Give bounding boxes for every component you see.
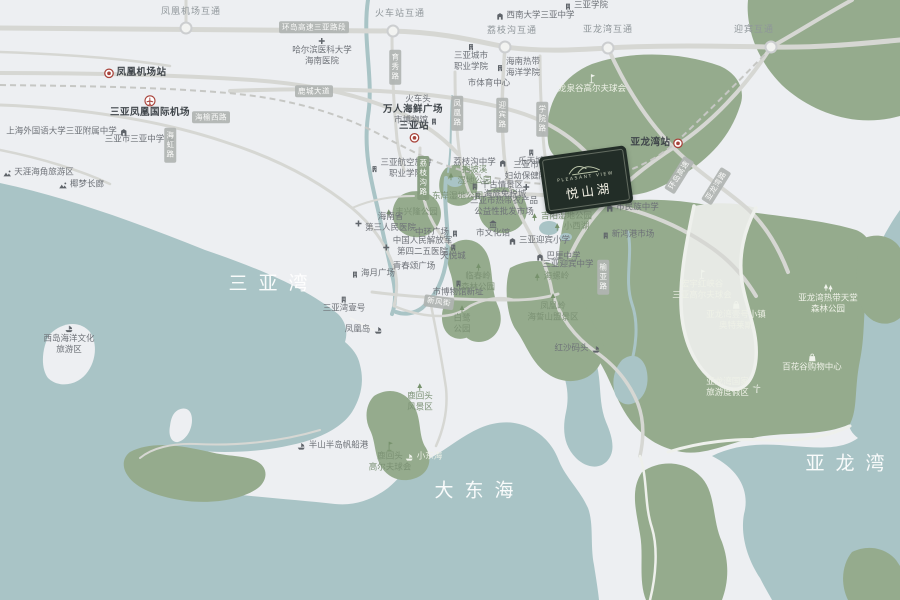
building-icon bbox=[454, 279, 462, 287]
cross-icon bbox=[317, 36, 326, 45]
poi-fengxinglong-park-label: 丰兴隆公园 bbox=[395, 207, 438, 218]
poi-wanren-seafood-plaza-label: 万人海鲜广场 bbox=[383, 104, 443, 116]
station-fenghuang-airport-label: 凤凰机场站 bbox=[116, 67, 166, 79]
metro-icon bbox=[673, 138, 684, 149]
interchange-fenghuang-airport: 凤凰机场互通 bbox=[161, 7, 221, 19]
tree-icon bbox=[553, 222, 562, 231]
golf-icon bbox=[697, 268, 707, 279]
interchange-yingbin-label: 迎宾互通 bbox=[734, 25, 774, 37]
poi-baihuagu-mall-label: 百花谷购物中心 bbox=[782, 362, 842, 373]
poi-qiangu-scenic-label: 千古情景区 bbox=[481, 180, 524, 191]
poi-linchunling-forest-park: 临春岭森林公园 bbox=[461, 262, 495, 293]
map-labels-layer: 凤凰机场站三亚凤凰国际机场三亚站亚龙湾站吉阳区政府上海外国语大学三亚附属中学三亚… bbox=[0, 0, 900, 600]
poi-yingbin-middle-school-label: 三亚迎宾中学 bbox=[542, 259, 593, 270]
tree-icon bbox=[446, 172, 455, 181]
poi-shanghai-foreign-school-label: 上海外国语大学三亚附属中学 bbox=[6, 126, 117, 137]
poi-cultural-center-label: 市文化馆 bbox=[476, 228, 510, 239]
cross-icon bbox=[354, 219, 363, 228]
station-fenghuang-airport: 凤凰机场站 bbox=[103, 67, 166, 79]
building-icon bbox=[430, 117, 438, 125]
poi-yingbin-primary-school-label: 三亚迎宾小学 bbox=[519, 235, 570, 246]
poi-west-island-label: 西岛海洋文化旅游区 bbox=[43, 334, 94, 356]
ship-icon bbox=[372, 325, 383, 335]
building-icon bbox=[564, 2, 572, 10]
poi-haiyue-plaza-label: 海月广场 bbox=[361, 268, 395, 279]
road-yuya: 榆亚路 bbox=[597, 260, 609, 295]
poi-wholesale-market-label: 三亚市热带农产品公益性批发市场 bbox=[470, 196, 538, 218]
road-lucheng-avenue: 鹿城大道 bbox=[295, 85, 333, 97]
poi-baopoxi-wetland-park-label: 抱坡溪湿地公园 bbox=[457, 165, 491, 187]
poi-qingchun-plaza-label: 青春颂广场 bbox=[393, 261, 436, 272]
road-haiyu-west: 海榆西路 bbox=[192, 111, 230, 123]
poi-egret-park-label: 白鹭公园 bbox=[453, 313, 470, 335]
poi-sanya-airport-label: 三亚凤凰国际机场 bbox=[110, 107, 190, 119]
poi-baopoxi-wetland-park: 抱坡溪湿地公园 bbox=[446, 165, 491, 187]
poi-shanghai-foreign-school: 上海外国语大学三亚附属中学 bbox=[6, 126, 128, 137]
sea-yalong-bay-label: 亚龙湾 bbox=[794, 452, 895, 477]
ship-icon bbox=[404, 452, 415, 462]
poi-jiyang-wetland-park: 吉阳湿地公园 bbox=[530, 211, 592, 222]
poi-dongan-wetland-park-label: 东岸湿地公园 bbox=[432, 191, 483, 202]
poi-bali-school: 巴厘中学 bbox=[535, 251, 580, 262]
school-icon bbox=[508, 236, 517, 245]
interchange-railway-station: 火车站互通 bbox=[375, 9, 425, 21]
bag-icon bbox=[807, 352, 817, 362]
poi-navy-hospital-label: 中国人民解放军第四二五医院 bbox=[393, 236, 453, 258]
poi-bali-school-label: 巴厘中学 bbox=[546, 251, 580, 262]
poi-train-head-label: 火车头 bbox=[405, 94, 431, 105]
building-icon bbox=[496, 64, 504, 72]
poi-luhuitou-golf: 鹿回头高尔夫球会 bbox=[369, 440, 412, 473]
poi-xiaodonghai: 小东海 bbox=[404, 451, 443, 462]
poi-egret-park: 白鹭公园 bbox=[453, 304, 470, 335]
building-icon bbox=[467, 43, 475, 51]
tree-icon bbox=[415, 382, 424, 391]
poi-sanya-airport: 三亚凤凰国际机场 bbox=[110, 95, 190, 119]
road-xueyuan: 学院路 bbox=[536, 102, 548, 137]
golf-icon bbox=[385, 440, 395, 451]
poi-city-vocational-college-label: 三亚城市职业学院 bbox=[454, 51, 488, 73]
poi-longquangu-golf-label: 龙泉谷高尔夫球会 bbox=[558, 84, 626, 95]
poi-city-museum: 市博物馆 bbox=[394, 115, 438, 126]
poi-zhonghuan-plaza: 中环广场 bbox=[415, 227, 459, 238]
school-icon bbox=[119, 127, 128, 136]
poi-harbin-medical-label: 哈尔滨医科大学海南医院 bbox=[292, 45, 352, 67]
poi-southwest-univ-school-label: 西南大学三亚中学 bbox=[506, 10, 574, 21]
station-yalongwan-label: 亚龙湾站 bbox=[630, 137, 670, 149]
building-icon bbox=[602, 231, 610, 239]
poi-city-museum-label: 市博物馆 bbox=[394, 115, 428, 126]
tree-icon bbox=[473, 262, 482, 271]
interchange-yingbin-node bbox=[765, 41, 778, 54]
road-huandao-expressway-sanya: 环岛高速三亚路段 bbox=[279, 21, 349, 33]
ship-icon bbox=[296, 441, 307, 451]
sea-yalong-bay: 亚龙湾 bbox=[794, 452, 895, 477]
poi-baihuagu-mall: 百花谷购物中心 bbox=[782, 352, 842, 373]
school-icon bbox=[535, 252, 544, 261]
poi-hongsha-pier: 红沙码头 bbox=[554, 343, 601, 354]
poi-sanya-university: 三亚学院 bbox=[564, 0, 608, 11]
cross-icon bbox=[382, 243, 391, 252]
poi-longquangu-golf: 龙泉谷高尔夫球会 bbox=[558, 73, 626, 95]
poi-tianyue-mall: 天悦城 bbox=[440, 243, 466, 262]
poi-yingbin-primary-school: 三亚迎宾小学 bbox=[508, 235, 570, 246]
poi-tropical-ocean-univ-label: 海南热带海洋学院 bbox=[506, 57, 540, 79]
scenic-icon bbox=[2, 168, 12, 178]
poi-west-island: 西岛海洋文化旅游区 bbox=[43, 324, 94, 356]
poi-third-people-hospital-label: 海南省第三人民医院 bbox=[365, 212, 416, 234]
station-yalongwan: 亚龙湾站 bbox=[630, 137, 683, 149]
poi-xiaoxihu-label: 小西湖 bbox=[564, 221, 590, 232]
poi-hailv-duty-free-label: 海旅免税城 bbox=[484, 189, 527, 200]
poi-xinhonggang-market: 新鸿港市场 bbox=[602, 229, 655, 240]
poi-luhuitou-scenic: 鹿回头风景区 bbox=[407, 382, 433, 413]
poi-sports-center-label: 市体育中心 bbox=[468, 78, 511, 89]
poi-yingbin-middle-school: 三亚迎宾中学 bbox=[542, 259, 593, 270]
poi-hailuoling: 海螺岭 bbox=[533, 271, 570, 282]
poi-tianya-haijiao-label: 天涯海角旅游区 bbox=[14, 167, 74, 178]
poi-banshan-marina: 半山半岛帆船港 bbox=[296, 440, 369, 451]
poi-yalongwan-resort-label: 亚龙湾国家旅游度假区 bbox=[706, 377, 749, 399]
trees-icon bbox=[822, 282, 834, 293]
building-icon bbox=[451, 229, 459, 237]
cross-icon bbox=[521, 183, 530, 192]
poi-train-head: 火车头 bbox=[405, 94, 431, 105]
poi-xiaoxihu: 小西湖 bbox=[553, 221, 590, 232]
poi-yalongwan-no1-outlets-label: 亚龙湾壹号小镇奥特莱斯 bbox=[706, 310, 766, 332]
ship-icon bbox=[591, 344, 602, 354]
poi-tianyue-mall-label: 天悦城 bbox=[440, 251, 466, 262]
interchange-lizhigou-label: 荔枝沟互通 bbox=[487, 26, 537, 38]
poi-tropical-ocean-univ: 海南热带海洋学院 bbox=[496, 57, 540, 79]
interchange-railway-station-label: 火车站互通 bbox=[375, 9, 425, 21]
poi-tianya-haijiao: 天涯海角旅游区 bbox=[2, 167, 74, 178]
building-icon bbox=[471, 182, 479, 190]
tree-icon bbox=[384, 208, 393, 217]
interchange-yalongwan: 亚龙湾互通 bbox=[583, 25, 633, 37]
tree-icon bbox=[457, 304, 466, 313]
tree-icon bbox=[533, 272, 542, 281]
poi-harbin-medical: 哈尔滨医科大学海南医院 bbox=[292, 36, 352, 67]
poi-linchunling-forest-park-label: 临春岭森林公园 bbox=[461, 271, 495, 293]
poi-yemeng-corridor: 椰梦长廊 bbox=[58, 179, 104, 190]
poi-hongxiagu-golf: 宏宇红峡谷三亚高尔夫球会 bbox=[672, 268, 732, 301]
poi-hailv-duty-free: 海旅免税城 bbox=[474, 189, 527, 200]
sanya-location-map: 凤凰机场站三亚凤凰国际机场三亚站亚龙湾站吉阳区政府上海外国语大学三亚附属中学三亚… bbox=[0, 0, 900, 600]
poi-zhonghuan-plaza-label: 中环广场 bbox=[415, 227, 449, 238]
road-huandao-expressway: 环岛高速 bbox=[664, 156, 694, 194]
school-icon bbox=[498, 158, 507, 167]
poi-third-people-hospital: 海南省第三人民医院 bbox=[354, 212, 416, 234]
interchange-fenghuang-airport-label: 凤凰机场互通 bbox=[161, 7, 221, 19]
interchange-yalongwan-label: 亚龙湾互通 bbox=[583, 25, 633, 37]
bag-icon bbox=[731, 300, 741, 310]
plane-icon bbox=[144, 95, 156, 107]
poi-phoenix-island: 凤凰岛 bbox=[345, 324, 384, 335]
interchange-lizhigou: 荔枝沟互通 bbox=[487, 26, 537, 38]
building-icon bbox=[474, 191, 482, 199]
poi-banshan-marina-label: 半山半岛帆船港 bbox=[309, 440, 369, 451]
poi-fenghuangling-scenic: 凤凰岭海誓山盟景区 bbox=[527, 292, 578, 323]
palm-icon bbox=[751, 383, 762, 394]
poi-hongxiagu-golf-label: 宏宇红峡谷三亚高尔夫球会 bbox=[672, 279, 732, 301]
poi-city-vocational-college: 三亚城市职业学院 bbox=[454, 43, 488, 73]
poi-tropical-paradise-forest-park-label: 亚龙湾热带天堂森林公园 bbox=[798, 293, 858, 315]
road-xinfeng-street: 新风街 bbox=[423, 294, 454, 310]
poi-lizhigou-school-label: 荔枝沟中学 bbox=[453, 157, 496, 168]
school-icon bbox=[495, 11, 504, 20]
sea-sanya-bay-label: 三亚湾 bbox=[217, 272, 318, 297]
project-marker-frame: PLEASANT VIEW 悦山湖 bbox=[542, 149, 630, 212]
poi-qingchun-plaza: 青春颂广场 bbox=[393, 261, 436, 272]
poi-southwest-univ-school: 西南大学三亚中学 bbox=[495, 10, 574, 21]
bank-icon bbox=[488, 218, 498, 228]
building-icon bbox=[527, 148, 535, 156]
tree-icon bbox=[548, 292, 557, 301]
metro-icon bbox=[103, 68, 114, 79]
building-icon bbox=[449, 243, 457, 251]
interchange-yingbin: 迎宾互通 bbox=[734, 25, 774, 37]
poi-navy-hospital: 中国人民解放军第四二五医院 bbox=[382, 236, 453, 258]
poi-fengxinglong-park: 丰兴隆公园 bbox=[384, 207, 438, 218]
poi-yemeng-corridor-label: 椰梦长廊 bbox=[70, 179, 104, 190]
poi-hailuoling-label: 海螺岭 bbox=[544, 271, 570, 282]
poi-sanyawan-no1: 三亚湾壹号 bbox=[323, 295, 366, 314]
poi-haiyue-plaza: 海月广场 bbox=[351, 268, 395, 279]
poi-lizhigou-school: 荔枝沟中学 bbox=[453, 157, 507, 168]
poi-wholesale-market: 三亚市热带农产品公益性批发市场 bbox=[470, 196, 538, 218]
interchange-fenghuang-airport-node bbox=[180, 22, 193, 35]
building-icon bbox=[351, 270, 359, 278]
poi-phoenix-island-label: 凤凰岛 bbox=[345, 324, 371, 335]
poi-tropical-paradise-forest-park: 亚龙湾热带天堂森林公园 bbox=[798, 282, 858, 315]
poi-sanyawan-no1-label: 三亚湾壹号 bbox=[323, 303, 366, 314]
golf-icon bbox=[587, 73, 597, 84]
poi-fenghuangling-scenic-label: 凤凰岭海誓山盟景区 bbox=[527, 301, 578, 323]
ship-icon bbox=[63, 324, 74, 334]
road-fenghuang: 凤凰路 bbox=[451, 96, 463, 131]
poi-wanren-seafood-plaza: 万人海鲜广场 bbox=[383, 104, 443, 116]
building-icon bbox=[340, 295, 348, 303]
scenic-icon bbox=[58, 180, 68, 190]
station-sanya-label: 三亚站 bbox=[399, 120, 429, 132]
interchange-railway-station-node bbox=[387, 25, 400, 38]
road-haihong: 海虹路 bbox=[164, 128, 176, 163]
building-icon bbox=[370, 165, 378, 173]
project-marker-yueshanhu: PLEASANT VIEW 悦山湖 bbox=[538, 145, 633, 215]
poi-xinhonggang-market-label: 新鸿港市场 bbox=[612, 229, 655, 240]
poi-cultural-center: 市文化馆 bbox=[476, 218, 510, 239]
interchange-yalongwan-node bbox=[602, 42, 615, 55]
poi-sanya-university-label: 三亚学院 bbox=[574, 0, 608, 11]
poi-xiaodonghai-label: 小东海 bbox=[417, 451, 443, 462]
sea-dadonghai: 大东海 bbox=[423, 479, 524, 504]
poi-luhuitou-scenic-label: 鹿回头风景区 bbox=[407, 391, 433, 413]
station-sanya: 三亚站 bbox=[399, 120, 429, 143]
road-yalongwan: 亚龙湾路 bbox=[701, 167, 731, 205]
poi-sports-center: 市体育中心 bbox=[468, 78, 511, 89]
poi-sanya-middle-school-label: 三亚市三亚中学 bbox=[105, 134, 165, 145]
road-lizhigou: 荔枝沟路 bbox=[417, 156, 429, 200]
metro-icon bbox=[408, 133, 419, 144]
poi-yalongwan-no1-outlets: 亚龙湾壹号小镇奥特莱斯 bbox=[706, 300, 766, 332]
poi-qiangu-scenic: 千古情景区 bbox=[471, 180, 524, 191]
interchange-lizhigou-node bbox=[499, 41, 512, 54]
tree-icon bbox=[530, 212, 539, 221]
road-yuxiu: 育秀路 bbox=[389, 50, 401, 85]
poi-yalongwan-resort: 亚龙湾国家旅游度假区 bbox=[706, 377, 762, 399]
poi-dongan-wetland-park: 东岸湿地公园 bbox=[421, 191, 483, 202]
sea-sanya-bay: 三亚湾 bbox=[217, 272, 318, 297]
sea-dadonghai-label: 大东海 bbox=[423, 479, 524, 504]
poi-hongsha-pier-label: 红沙码头 bbox=[554, 343, 588, 354]
road-yingbin: 迎宾路 bbox=[496, 98, 508, 133]
poi-luhuitou-golf-label: 鹿回头高尔夫球会 bbox=[369, 451, 412, 473]
